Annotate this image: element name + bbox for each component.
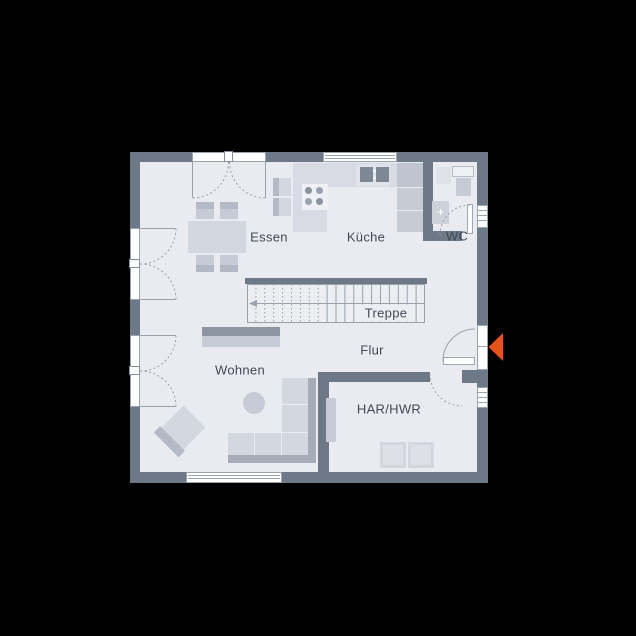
wc-window [477, 205, 488, 228]
window-glazing-line [188, 478, 280, 479]
sofa-cushion [255, 433, 281, 455]
stove [302, 184, 328, 210]
room-label-wc: WC [446, 229, 468, 244]
sofa-corner-cushion [282, 433, 308, 455]
window-glazing-line [478, 402, 487, 403]
room-label-wohnen: Wohnen [215, 363, 265, 378]
sofa-backrest [228, 455, 316, 463]
dining-cabinet [273, 178, 291, 196]
patio-door-left-upper-handle [129, 259, 140, 268]
wc-sink [432, 201, 449, 224]
window-glazing-line [478, 210, 487, 211]
sofa-cushion [228, 433, 254, 455]
dryer [408, 442, 434, 468]
room-label-flur: Flur [360, 343, 384, 358]
washing-machine [380, 442, 406, 468]
room-label-essen: Essen [250, 230, 288, 245]
entrance-door-divider [478, 346, 487, 347]
sink-bowl [376, 167, 389, 182]
entrance-door-leaf [443, 357, 475, 365]
dining-chair [196, 202, 214, 219]
patio-door-left-lower-handle [129, 366, 140, 375]
coffee-table [243, 392, 265, 414]
dining-chair [196, 255, 214, 272]
window-glazing-line [188, 475, 280, 476]
dining-table [188, 221, 246, 253]
dining-chair [220, 202, 238, 219]
window-glazing-line [325, 158, 395, 159]
floorplan-scene: Essen Küche WC Treppe Flur Wohnen HAR/HW… [0, 0, 636, 636]
kitchen-window [323, 152, 397, 162]
window-glazing-line [478, 392, 487, 393]
room-label-kueche: Küche [347, 230, 385, 245]
patio-door-top-handle [224, 151, 233, 162]
kitchen-tall-cabinets [397, 163, 423, 232]
window-glazing-line [325, 155, 395, 156]
room-label-har: HAR/HWR [357, 402, 421, 417]
toilet-bowl [456, 178, 471, 196]
room-label-treppe: Treppe [361, 305, 412, 322]
utility-shelf [326, 398, 336, 442]
toilet-tank [452, 166, 474, 177]
sofa-cushion [282, 405, 308, 432]
entrance-door-frame [477, 325, 488, 370]
dining-cabinet [273, 198, 291, 216]
window-glazing-line [478, 220, 487, 221]
window-glazing-line [478, 397, 487, 398]
window-glazing-line [478, 215, 487, 216]
sideboard-top [202, 327, 280, 336]
sink-bowl [360, 167, 373, 182]
wc-cabinet [436, 167, 451, 184]
utility-top-wall [318, 372, 430, 382]
entrance-marker-icon [489, 333, 504, 361]
sofa-backrest [308, 378, 316, 463]
sideboard [202, 336, 280, 347]
sofa-cushion [282, 378, 308, 404]
dining-chair [220, 255, 238, 272]
utility-wall-stub [462, 370, 477, 383]
